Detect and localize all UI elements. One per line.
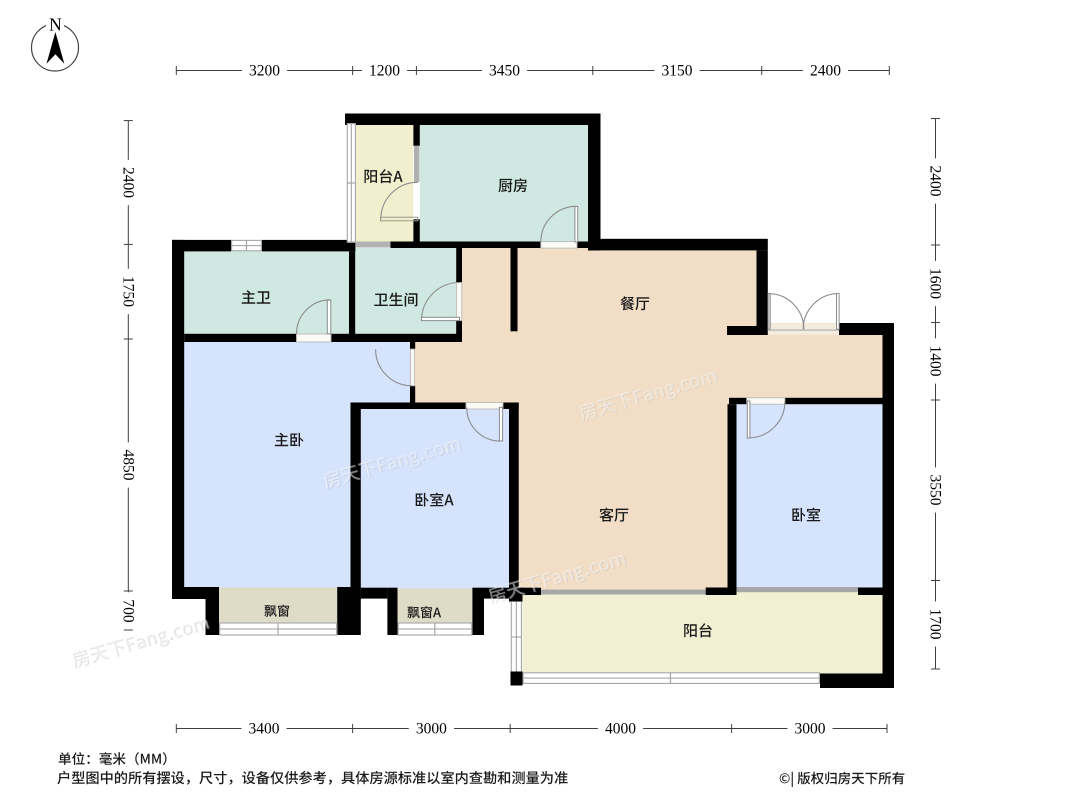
svg-text:3200: 3200	[249, 63, 280, 80]
svg-text:1400: 1400	[927, 346, 944, 377]
svg-text:3150: 3150	[662, 63, 693, 80]
svg-text:3450: 3450	[489, 63, 520, 80]
svg-text:2400: 2400	[927, 166, 944, 197]
svg-text:1200: 1200	[369, 63, 400, 80]
svg-text:4000: 4000	[605, 721, 636, 738]
svg-text:1600: 1600	[927, 268, 944, 299]
svg-text:2400: 2400	[119, 167, 136, 198]
svg-text:3550: 3550	[927, 475, 944, 506]
svg-text:1700: 1700	[927, 609, 944, 640]
svg-text:3400: 3400	[249, 721, 280, 738]
svg-text:N: N	[49, 15, 62, 35]
svg-text:3000: 3000	[795, 721, 826, 738]
svg-text:1750: 1750	[119, 276, 136, 307]
svg-text:2400: 2400	[810, 63, 841, 80]
svg-text:4850: 4850	[119, 450, 136, 481]
svg-text:700: 700	[119, 599, 136, 623]
svg-text:3000: 3000	[416, 721, 447, 738]
